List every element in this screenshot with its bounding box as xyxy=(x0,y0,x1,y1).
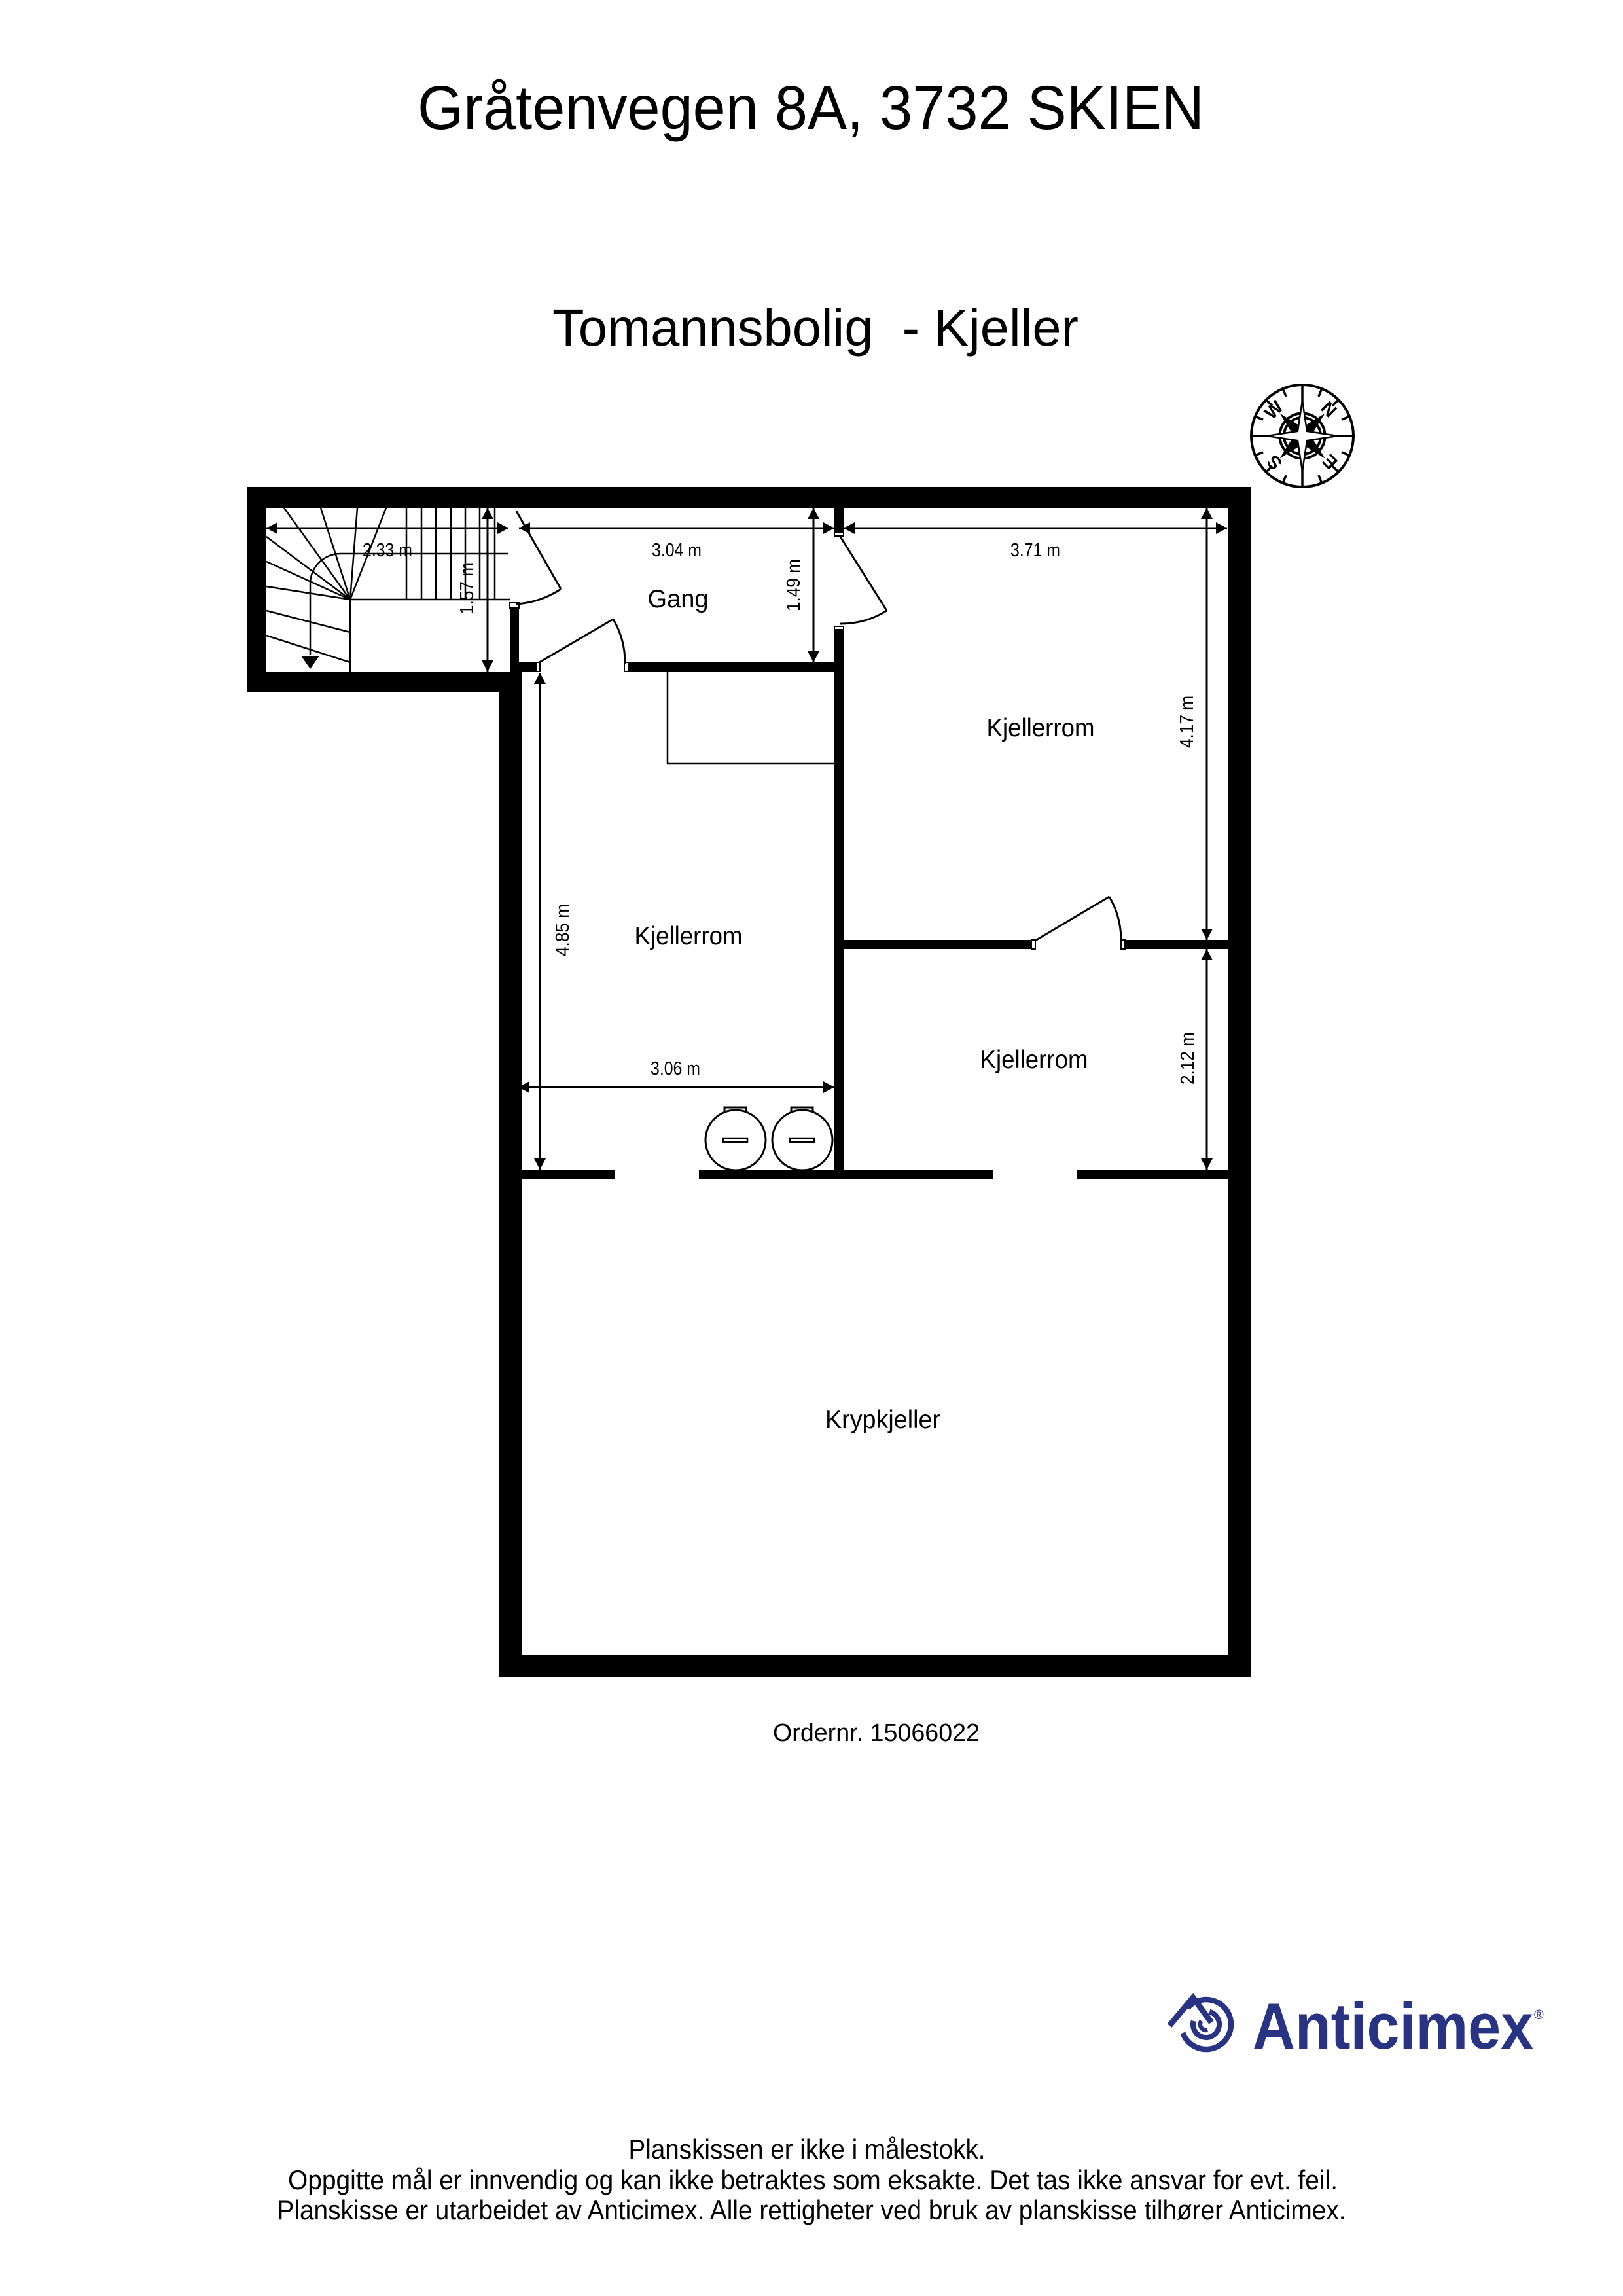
svg-text:2.33 m: 2.33 m xyxy=(363,540,412,561)
svg-text:Gang: Gang xyxy=(648,585,709,613)
svg-text:Planskissen er ikke i målestok: Planskissen er ikke i målestokk. xyxy=(629,2134,986,2164)
svg-text:Planskisse er utarbeidet av An: Planskisse er utarbeidet av Anticimex. A… xyxy=(277,2195,1346,2225)
svg-text:Anticimex: Anticimex xyxy=(1253,1990,1533,2062)
svg-text:Tomannsbolig - Kjeller: Tomannsbolig - Kjeller xyxy=(552,298,1079,357)
svg-text:4.85 m: 4.85 m xyxy=(552,904,573,956)
svg-text:3.06 m: 3.06 m xyxy=(651,1058,700,1079)
svg-text:Oppgitte mål er innvendig og k: Oppgitte mål er innvendig og kan ikke be… xyxy=(288,2164,1338,2195)
svg-text:2.12 m: 2.12 m xyxy=(1177,1032,1198,1085)
svg-text:Kjellerrom: Kjellerrom xyxy=(987,714,1095,742)
svg-text:®: ® xyxy=(1534,2008,1544,2022)
svg-text:3.71 m: 3.71 m xyxy=(1010,540,1060,561)
svg-text:1.49 m: 1.49 m xyxy=(783,559,804,611)
svg-text:Gråtenvegen 8A, 3732 SKIEN: Gråtenvegen 8A, 3732 SKIEN xyxy=(418,73,1204,143)
svg-text:1.57 m: 1.57 m xyxy=(457,562,478,615)
svg-text:4.17 m: 4.17 m xyxy=(1177,696,1198,748)
svg-text:3.04 m: 3.04 m xyxy=(652,540,702,561)
svg-text:Kjellerrom: Kjellerrom xyxy=(980,1046,1088,1074)
svg-text:Ordernr. 15066022: Ordernr. 15066022 xyxy=(773,1719,980,1747)
svg-text:Krypkjeller: Krypkjeller xyxy=(825,1406,940,1434)
svg-text:Kjellerrom: Kjellerrom xyxy=(635,922,743,950)
